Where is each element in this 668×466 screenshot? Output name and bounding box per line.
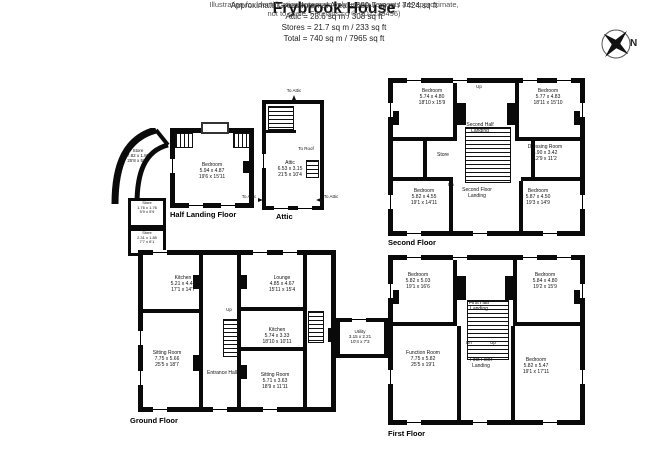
wall: [457, 326, 461, 420]
arrow-left-icon: [316, 198, 321, 202]
window-marker: [189, 203, 203, 208]
floor-label-attic: Attic: [276, 212, 293, 221]
window-marker: [407, 231, 421, 236]
room-label-utility: Utility 3.15 x 2.21 10'4 x 7'3: [336, 329, 384, 344]
window-marker: [580, 370, 585, 384]
room-name: First Half Landing: [461, 300, 497, 312]
window-marker: [407, 78, 421, 83]
plan-attic: [262, 100, 324, 210]
room-dim-imperial: 18'9 x 11'11: [245, 384, 305, 390]
chimney-block: [507, 103, 516, 125]
window-marker: [261, 154, 266, 168]
window-marker: [523, 255, 537, 260]
annotation-to-attic-br: To Attic: [322, 194, 340, 199]
room-label-first-bedroom-br: Bedroom 5.82 x 5.47 19'1 x 17'11: [507, 357, 565, 375]
room-name: Store: [429, 152, 457, 158]
room-dim-imperial: 19'1 x 14'11: [394, 200, 454, 206]
annotation-to-attic-top: To Attic: [279, 88, 309, 93]
room-label-second-bedroom-br: Bedroom 5.87 x 4.50 19'3 x 14'9: [508, 188, 568, 206]
wall: [515, 137, 580, 141]
room-label-second-bedroom-tl: Bedroom 5.74 x 4.80 18'10 x 15'9: [398, 88, 466, 106]
wall: [393, 177, 453, 181]
chimney-block: [393, 111, 399, 125]
stairs: [308, 311, 324, 343]
room-dim-imperial: 19'1 x 17'11: [507, 369, 565, 375]
room-label-first-floor-landing: First Floor Landing: [463, 357, 499, 369]
wall: [241, 307, 303, 311]
stair-up-label: Up: [472, 84, 486, 89]
arrow-up-icon: [292, 95, 296, 100]
floor-label-ground: Ground Floor: [130, 416, 178, 425]
compass-n-label: N: [630, 38, 637, 49]
window-marker: [473, 231, 487, 236]
window-marker: [557, 78, 571, 83]
room-label-function-room: Function Room 7.75 x 5.82 25'5 x 19'1: [392, 350, 454, 368]
window-marker: [557, 255, 571, 260]
window-marker: [274, 206, 288, 211]
room-dim-imperial: 25'8 x 5'11: [116, 158, 160, 163]
chimney-block: [457, 276, 466, 300]
disclaimer: Illustration for identification purposes…: [0, 0, 668, 18]
room-dim-imperial: 15'11 x 15'4: [252, 287, 312, 293]
stairs: [223, 319, 238, 357]
area-line-total: Total = 740 sq m / 7965 sq ft: [0, 33, 668, 44]
wall: [393, 322, 457, 326]
bay-window: [201, 122, 229, 134]
room-dim-imperial: 19'6 x 15'11: [180, 174, 244, 180]
window-marker: [170, 159, 175, 173]
room-label-second-floor-landing: Second Floor Landing: [457, 187, 497, 199]
room-label-attic: Attic 6.53 x 3.15 21'5 x 10'4: [268, 160, 312, 178]
chimney-block: [393, 290, 399, 304]
wall: [521, 177, 580, 181]
chimney-block: [241, 275, 247, 289]
wall: [143, 309, 199, 313]
stairs: [268, 106, 294, 130]
window-marker: [153, 250, 167, 255]
stair-up-label: Up: [222, 307, 236, 312]
area-line-stores: Stores = 21.7 sq m / 233 sq ft: [0, 22, 668, 33]
floorplan-page: Frybrook House Approximate Gross Interna…: [0, 0, 668, 466]
window-marker: [153, 407, 167, 412]
disclaimer-line-2: not to scale. Fourlabs.co © (ID1239496): [0, 9, 668, 18]
stairs: [233, 133, 251, 148]
room-name: Second Half Landing: [460, 122, 500, 134]
window-marker: [523, 78, 537, 83]
room-label-kitchen-left: Kitchen 5.21 x 4.44 17'1 x 14'7: [153, 275, 213, 293]
window-marker: [543, 231, 557, 236]
room-label-lounge: Lounge 4.85 x 4.67 15'11 x 15'4: [252, 275, 312, 293]
room-dim-imperial: 18'11 x 15'10: [514, 100, 582, 106]
window-marker: [221, 203, 235, 208]
floor-label-first: First Floor: [388, 429, 425, 438]
room-label-first-bedroom-tr: Bedroom 5.84 x 4.80 19'2 x 15'9: [514, 272, 576, 290]
disclaimer-line-1: Illustration for identification purposes…: [0, 0, 668, 9]
room-dim-imperial: 21'5 x 10'4: [268, 172, 312, 178]
room-label-dressing-room: Dressing Room 3.90 x 3.42 12'9 x 11'2: [517, 144, 573, 162]
room-dim-imperial: 10'4 x 7'3: [336, 339, 384, 344]
room-dim-imperial: 25'5 x 19'1: [392, 362, 454, 368]
room-dim-imperial: 19'2 x 15'9: [514, 284, 576, 290]
curved-store-wing: [110, 128, 170, 206]
floor-label-half-landing: Half Landing Floor: [170, 210, 236, 219]
room-name: Second Floor Landing: [457, 187, 497, 199]
window-marker: [263, 407, 277, 412]
room-name: Entrance Hall: [201, 370, 243, 376]
room-dim-imperial: 19'3 x 14'9: [508, 200, 568, 206]
window-marker: [388, 103, 393, 117]
room-label-second-half-landing: Second Half Landing: [460, 122, 500, 134]
window-marker: [388, 195, 393, 209]
chimney-block: [505, 276, 514, 300]
floor-label-second: Second Floor: [388, 238, 436, 247]
window-marker: [138, 331, 143, 345]
window-marker: [388, 370, 393, 384]
room-label-first-half-landing: First Half Landing: [461, 300, 497, 312]
room-label-sitting-room-center: Sitting Room 5.71 x 3.63 18'9 x 11'11: [245, 372, 305, 390]
annotation-to-attic-bl: To Attic: [240, 194, 258, 199]
arrow-right-icon: [258, 198, 263, 202]
stairs: [465, 127, 511, 183]
window-marker: [473, 420, 487, 425]
window-marker: [543, 420, 557, 425]
room-dim-imperial: 18'10 x 15'9: [398, 100, 466, 106]
window-marker: [298, 206, 312, 211]
room-label-half-landing-bedroom: Bedroom 5.94 x 4.87 19'6 x 15'11: [180, 162, 244, 180]
stairs: [175, 133, 193, 148]
window-marker: [253, 250, 267, 255]
room-dim-imperial: 7'7 x 6'1: [128, 240, 166, 245]
room-dim-imperial: 18'10 x 10'11: [247, 339, 307, 345]
wall: [513, 322, 580, 326]
room-label-sitting-room-left: Sitting Room 7.75 x 5.66 25'5 x 18'7: [139, 350, 195, 368]
room-label-second-bedroom-bl: Bedroom 5.82 x 4.55 19'1 x 14'11: [394, 188, 454, 206]
stair-up-label: Up: [486, 340, 500, 345]
window-marker: [407, 255, 421, 260]
window-marker: [213, 407, 227, 412]
room-name: First Floor Landing: [463, 357, 499, 369]
window-marker: [580, 284, 585, 298]
room-label-store-curve: Store 7.82 x 1.80 25'8 x 5'11: [116, 148, 160, 163]
room-dim-imperial: 17'1 x 14'7: [153, 287, 213, 293]
room-dim-imperial: 12'9 x 11'2: [517, 156, 573, 162]
window-marker: [453, 255, 467, 260]
room-dim-imperial: 19'1 x 16'6: [390, 284, 446, 290]
room-label-entrance-hall: Entrance Hall: [201, 370, 243, 376]
window-marker: [580, 195, 585, 209]
annotation-to-roof: To Roof: [294, 146, 318, 151]
room-label-kitchen-center: Kitchen 5.74 x 3.33 18'10 x 10'11: [247, 327, 307, 345]
room-dim-imperial: 5'9 x 5'9: [128, 210, 166, 215]
room-dim-imperial: 25'5 x 18'7: [139, 362, 195, 368]
window-marker: [352, 317, 366, 322]
stair-dn-label: Dn: [444, 182, 458, 187]
wall: [266, 130, 296, 133]
wall: [241, 347, 303, 351]
window-marker: [453, 78, 467, 83]
stair-dn-label: Dn: [462, 340, 476, 345]
room-label-second-store: Store: [429, 152, 457, 158]
room-label-store-2: Store 2.31 x 1.85 7'7 x 6'1: [128, 231, 166, 245]
room-label-store-1: Store 1.76 x 1.76 5'9 x 5'9: [128, 201, 166, 215]
room-label-second-bedroom-tr: Bedroom 5.77 x 4.83 18'11 x 15'10: [514, 88, 582, 106]
window-marker: [407, 420, 421, 425]
window-marker: [138, 371, 143, 385]
wall: [423, 141, 427, 177]
room-label-first-bedroom-tl: Bedroom 5.82 x 5.03 19'1 x 16'6: [390, 272, 446, 290]
window-marker: [283, 250, 297, 255]
